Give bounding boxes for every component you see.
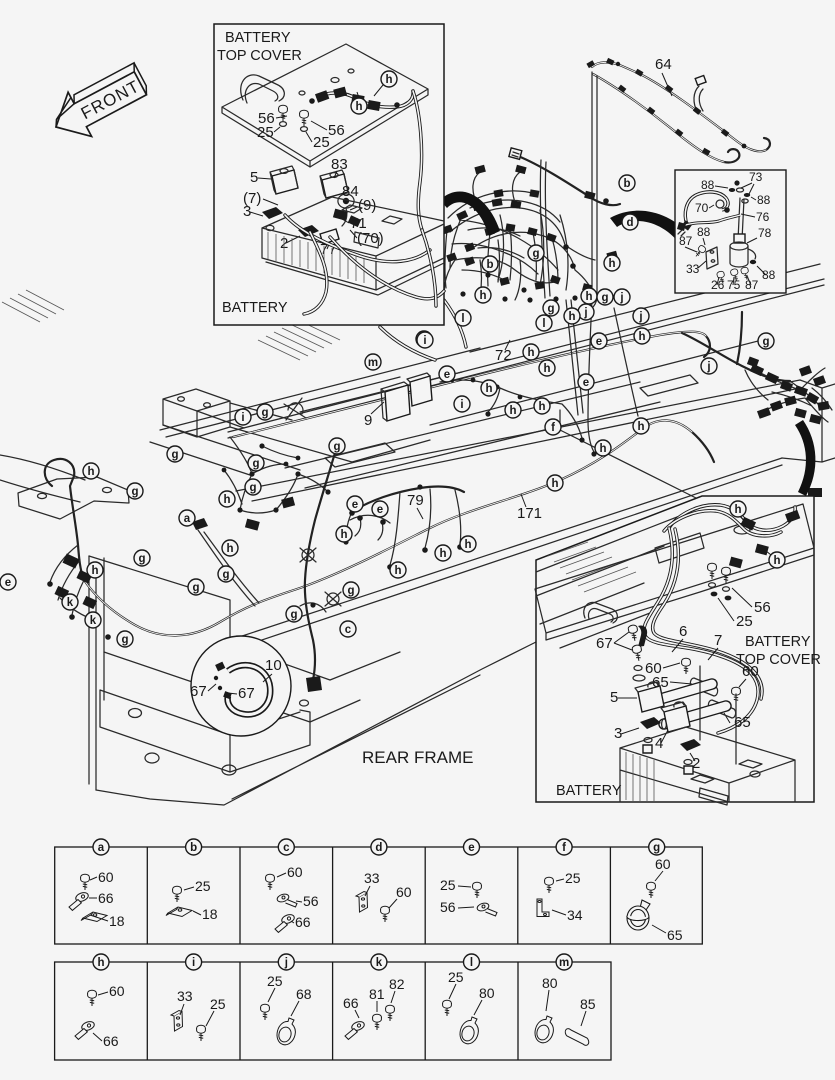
svg-text:h: h [355,101,362,113]
svg-text:25: 25 [448,969,464,985]
svg-text:i: i [423,335,426,347]
svg-text:60: 60 [655,856,671,872]
svg-text:BATTERY: BATTERY [222,300,288,316]
svg-text:66: 66 [98,890,114,906]
svg-text:g: g [171,449,178,461]
svg-text:56: 56 [440,899,456,915]
svg-text:88: 88 [697,225,711,239]
svg-text:h: h [223,494,230,506]
svg-text:e: e [596,336,602,348]
svg-text:25: 25 [195,878,211,894]
svg-text:79: 79 [407,492,424,509]
svg-text:c: c [345,624,352,636]
svg-text:60: 60 [98,869,114,885]
svg-text:TOP COVER: TOP COVER [217,48,302,64]
svg-text:25: 25 [565,870,581,886]
svg-text:a: a [184,513,191,525]
svg-text:67: 67 [596,635,613,652]
svg-text:j: j [619,292,623,304]
svg-text:e: e [352,499,358,511]
svg-text:h: h [734,504,741,516]
svg-text:66: 66 [103,1033,119,1049]
svg-text:k: k [90,615,97,627]
svg-text:80: 80 [542,975,558,991]
svg-text:25: 25 [313,134,330,151]
svg-text:25: 25 [736,613,753,630]
svg-text:j: j [706,361,710,373]
svg-text:83: 83 [331,156,348,173]
svg-text:84: 84 [342,183,359,200]
svg-text:85: 85 [580,996,596,1012]
svg-text:h: h [464,539,471,551]
svg-text:65: 65 [667,927,683,943]
svg-text:67: 67 [190,683,207,700]
svg-text:d: d [626,217,633,229]
svg-text:g: g [138,553,145,565]
svg-text:78: 78 [758,226,772,240]
svg-text:h: h [568,311,575,323]
svg-text:h: h [527,347,534,359]
svg-text:7: 7 [714,632,722,649]
svg-text:60: 60 [109,983,125,999]
svg-text:72: 72 [495,347,512,364]
svg-text:h: h [394,565,401,577]
svg-text:i: i [192,957,195,969]
svg-text:g: g [192,582,199,594]
svg-text:g: g [762,336,769,348]
svg-text:67: 67 [238,685,255,702]
svg-text:88: 88 [757,193,771,207]
svg-text:g: g [252,458,259,470]
svg-text:3: 3 [243,203,251,220]
svg-text:f: f [562,842,566,854]
svg-text:f: f [551,422,555,434]
svg-text:88: 88 [762,268,776,282]
svg-text:m: m [559,957,569,969]
svg-text:d: d [375,842,382,854]
svg-text:h: h [585,291,592,303]
svg-text:76: 76 [756,210,770,224]
svg-text:BATTERY: BATTERY [225,30,291,46]
svg-text:18: 18 [202,906,218,922]
svg-text:h: h [97,957,104,969]
svg-text:h: h [637,421,644,433]
svg-text:h: h [385,74,392,86]
svg-text:56: 56 [328,122,345,139]
svg-text:87: 87 [679,234,693,248]
svg-text:h: h [340,529,347,541]
svg-text:j: j [284,957,288,969]
svg-text:5: 5 [250,169,258,186]
svg-text:e: e [5,577,11,589]
svg-text:25: 25 [210,996,226,1012]
svg-text:k: k [67,597,74,609]
svg-text:18: 18 [109,913,125,929]
svg-text:33: 33 [364,870,380,886]
svg-text:66: 66 [295,914,311,930]
svg-text:80: 80 [479,985,495,1001]
svg-text:l: l [470,957,473,969]
svg-text:34: 34 [567,907,583,923]
svg-text:h: h [439,548,446,560]
svg-text:56: 56 [754,599,771,616]
svg-text:33: 33 [177,988,193,1004]
svg-text:h: h [773,555,780,567]
svg-text:h: h [638,331,645,343]
svg-text:m: m [368,357,378,369]
svg-text:10: 10 [265,657,282,674]
svg-text:g: g [261,407,268,419]
svg-text:g: g [333,441,340,453]
svg-text:33: 33 [686,262,700,276]
svg-text:b: b [623,178,630,190]
svg-text:e: e [583,377,589,389]
svg-text:25: 25 [257,124,274,141]
svg-text:171: 171 [517,505,542,522]
svg-text:h: h [599,443,606,455]
svg-text:(70): (70) [357,230,384,247]
svg-text:c: c [283,842,290,854]
svg-text:b: b [486,259,493,271]
svg-text:i: i [460,399,463,411]
svg-text:73: 73 [749,170,763,184]
svg-text:68: 68 [296,986,312,1002]
svg-text:g: g [347,585,354,597]
svg-text:e: e [377,504,383,516]
svg-text:h: h [543,363,550,375]
svg-text:66: 66 [343,995,359,1011]
svg-text:h: h [91,565,98,577]
svg-text:g: g [532,248,539,260]
svg-text:g: g [131,486,138,498]
svg-text:56: 56 [303,893,319,909]
svg-text:a: a [98,842,105,854]
svg-text:82: 82 [389,976,405,992]
svg-text:h: h [538,401,545,413]
svg-text:9: 9 [364,412,372,429]
svg-text:60: 60 [742,663,759,680]
svg-text:e: e [444,369,450,381]
svg-text:h: h [226,543,233,555]
svg-text:l: l [542,318,545,330]
svg-text:g: g [249,482,256,494]
svg-text:BATTERY: BATTERY [745,634,811,650]
svg-text:REAR FRAME: REAR FRAME [362,748,473,767]
svg-text:88: 88 [701,178,715,192]
svg-text:g: g [121,634,128,646]
svg-text:4: 4 [655,735,663,752]
svg-text:j: j [583,307,587,319]
svg-text:h: h [551,478,558,490]
svg-text:h: h [608,258,615,270]
svg-text:5: 5 [610,689,618,706]
svg-text:i: i [241,412,244,424]
svg-text:g: g [547,303,554,315]
svg-text:e: e [468,842,474,854]
svg-text:87: 87 [745,278,759,292]
svg-text:70: 70 [695,201,709,215]
svg-text:25: 25 [267,973,283,989]
svg-text:j: j [638,311,642,323]
svg-text:g: g [601,292,608,304]
svg-text:BATTERY: BATTERY [556,783,622,799]
svg-text:g: g [222,569,229,581]
svg-text:64: 64 [655,56,672,73]
svg-text:g: g [653,842,660,854]
svg-text:k: k [376,957,383,969]
svg-text:l: l [461,313,464,325]
svg-text:g: g [290,609,297,621]
svg-text:60: 60 [287,864,303,880]
svg-text:h: h [87,466,94,478]
svg-text:b: b [190,842,197,854]
svg-text:6: 6 [679,623,687,640]
svg-text:h: h [509,405,516,417]
svg-text:25: 25 [440,877,456,893]
svg-text:h: h [479,290,486,302]
svg-text:81: 81 [369,986,385,1002]
svg-text:60: 60 [396,884,412,900]
svg-text:h: h [485,383,492,395]
